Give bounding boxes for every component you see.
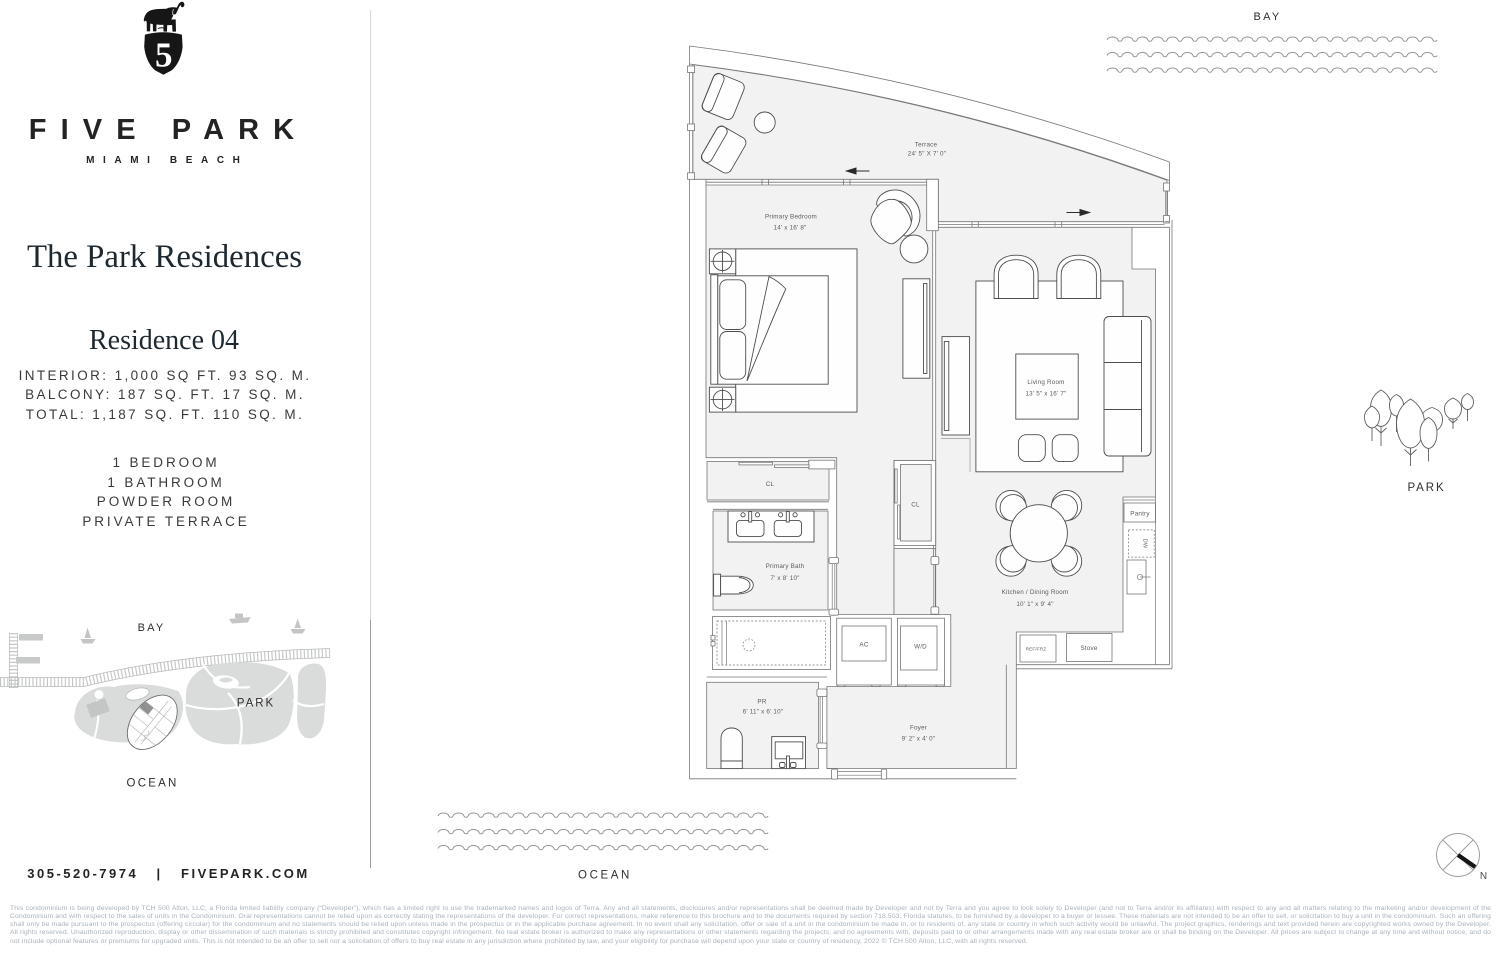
svg-text:PR: PR bbox=[757, 699, 766, 706]
svg-text:Stove: Stove bbox=[1080, 645, 1097, 652]
svg-text:14' x 16' 8": 14' x 16' 8" bbox=[774, 225, 807, 232]
svg-text:9' 2" x 4' 0": 9' 2" x 4' 0" bbox=[902, 736, 936, 743]
svg-text:CL: CL bbox=[766, 481, 775, 488]
svg-text:BAY: BAY bbox=[138, 622, 166, 634]
svg-text:AC: AC bbox=[859, 642, 868, 649]
svg-text:PARK: PARK bbox=[237, 698, 275, 710]
svg-text:BAY: BAY bbox=[1253, 11, 1281, 23]
svg-text:10' 1" x 9' 4": 10' 1" x 9' 4" bbox=[1016, 601, 1053, 608]
svg-text:Living Room: Living Room bbox=[1027, 379, 1064, 386]
svg-text:N: N bbox=[1480, 871, 1487, 882]
svg-text:W/D: W/D bbox=[914, 644, 927, 651]
svg-text:Primary Bedroom: Primary Bedroom bbox=[765, 214, 817, 221]
svg-text:DW: DW bbox=[1142, 539, 1148, 549]
svg-text:Terrace: Terrace bbox=[915, 142, 938, 149]
svg-text:5: 5 bbox=[155, 36, 173, 75]
svg-text:REF/FRZ: REF/FRZ bbox=[1026, 647, 1047, 652]
svg-text:Kitchen / Dining Room: Kitchen / Dining Room bbox=[1002, 589, 1069, 596]
svg-text:6' 11" x 6' 10": 6' 11" x 6' 10" bbox=[743, 709, 784, 716]
svg-text:Foyer: Foyer bbox=[910, 725, 927, 732]
svg-text:13' 5" x 16' 7": 13' 5" x 16' 7" bbox=[1025, 391, 1066, 398]
svg-text:Pantry: Pantry bbox=[1130, 511, 1150, 518]
svg-text:7' x 8' 10": 7' x 8' 10" bbox=[770, 575, 799, 582]
svg-text:24' 5" X 7' 0": 24' 5" X 7' 0" bbox=[908, 151, 946, 158]
svg-text:CL: CL bbox=[911, 502, 920, 509]
svg-text:Primary Bath: Primary Bath bbox=[766, 563, 805, 570]
svg-text:OCEAN: OCEAN bbox=[578, 870, 632, 882]
svg-text:OCEAN: OCEAN bbox=[127, 778, 179, 790]
svg-text:PARK: PARK bbox=[1407, 482, 1445, 494]
